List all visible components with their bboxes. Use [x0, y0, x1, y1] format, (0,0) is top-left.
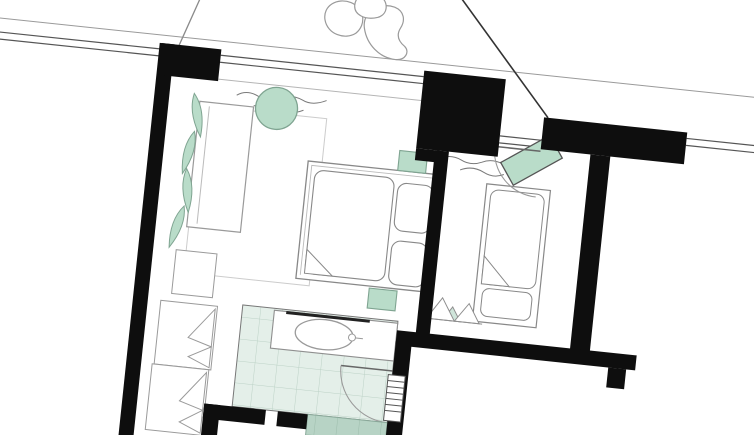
bathroom [232, 305, 398, 423]
wall-entry-notch [606, 367, 626, 389]
wall-pier-a [158, 43, 221, 81]
nightstand [367, 288, 397, 311]
wall-pier-b [416, 71, 506, 157]
single-bed-pillow [480, 288, 533, 321]
double-bed [296, 161, 442, 292]
wall-bathroom-south [276, 411, 307, 429]
floor-plan-canvas [0, 0, 754, 435]
floor-plan-svg [0, 0, 754, 435]
tap [348, 334, 356, 342]
stool [172, 250, 217, 298]
